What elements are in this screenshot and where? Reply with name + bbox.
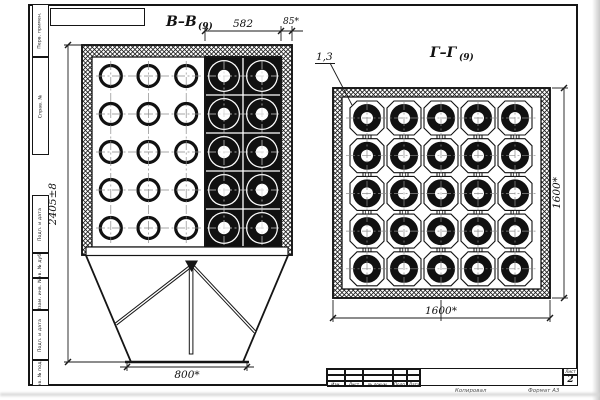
margin-cell-inv-dubl: Инв. № дубл. [32,253,49,278]
margin-label: Перв. примен. [38,12,43,48]
scan-edge-shadow-bottom [0,393,600,396]
doc-number-stamp [50,8,145,26]
margin-cell-vzam-inv: Взам. инв. № [32,278,49,310]
margin-label: Взам. инв. № [38,278,43,310]
tb-header-data: Дата [407,381,421,387]
margin-cell-perv-primen: Перв. примен. [32,4,49,57]
margin-cell-sprav-no: Справ. № [32,57,49,155]
sheet-number: 2 [563,375,578,387]
margin-label: Подп. и дата [38,207,43,240]
tb-header-dokum: № докум. [363,381,393,387]
margin-label: Инв. № подл. [38,360,43,386]
margin-label: Справ. № [38,94,43,118]
scanned-drawing-sheet: { "sheet": { "sheet_number_label": "Лист… [0,0,600,400]
tb-header-podp: Подп. [393,381,407,387]
scan-edge-shadow-right [592,0,600,400]
tb-header-list: Лист [345,381,363,387]
titleblock-revision-table: Изм. Лист № докум. Подп. Дата [326,368,420,386]
margin-cell-podp-data-1: Подп. и дата [32,195,49,253]
titleblock-designation-field [420,368,563,386]
drawing-frame [28,4,578,386]
margin-label: Подп. и дата [38,318,43,351]
tb-header-izm: Изм. [327,381,345,387]
margin-label: Инв. № дубл. [38,253,43,278]
margin-cell-inv-podl: Инв. № подл. [32,360,49,386]
margin-cell-podp-data-2: Подп. и дата [32,310,49,360]
